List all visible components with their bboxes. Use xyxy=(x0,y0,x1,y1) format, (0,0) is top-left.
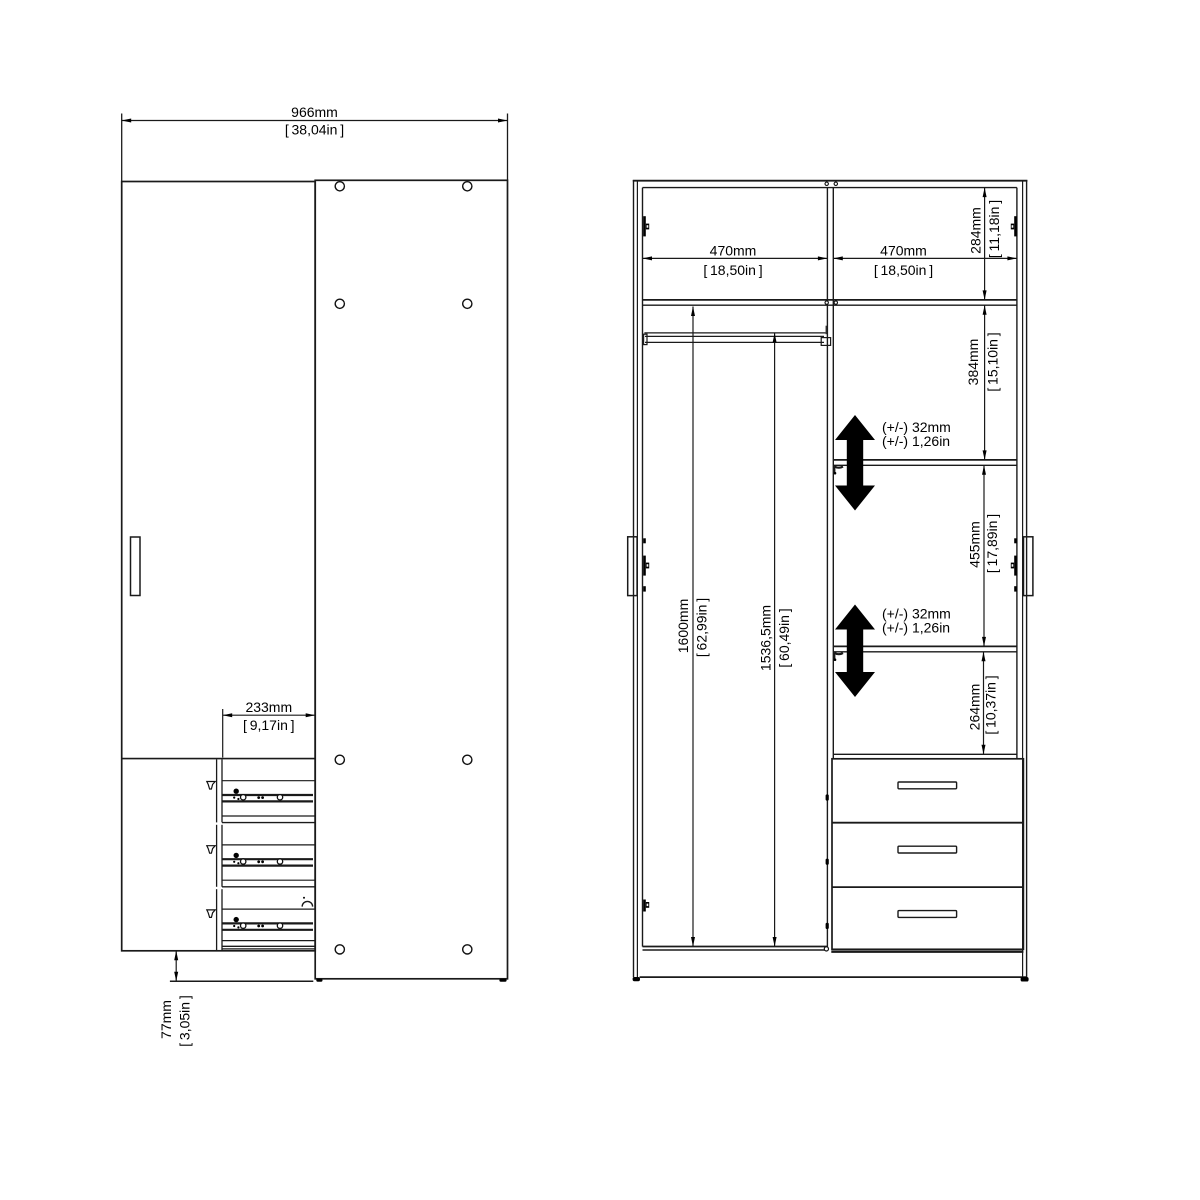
svg-text:[ 9,17in ]: [ 9,17in ] xyxy=(243,717,295,733)
svg-text:[ 18,50in ]: [ 18,50in ] xyxy=(874,262,933,278)
svg-text:455mm: 455mm xyxy=(966,521,982,568)
svg-text:966mm: 966mm xyxy=(291,104,338,120)
svg-text:(+/-) 1,26in: (+/-) 1,26in xyxy=(882,620,950,636)
svg-text:[ 18,50in ]: [ 18,50in ] xyxy=(703,262,762,278)
svg-text:[ 15,10in ]: [ 15,10in ] xyxy=(985,332,1001,391)
svg-text:[ 60,49in ]: [ 60,49in ] xyxy=(776,608,792,667)
svg-text:(+/-) 1,26in: (+/-) 1,26in xyxy=(882,433,950,449)
svg-text:[ 3,05in ]: [ 3,05in ] xyxy=(177,995,193,1047)
svg-text:284mm: 284mm xyxy=(967,207,983,254)
svg-text:[ 11,18in ]: [ 11,18in ] xyxy=(986,200,1002,258)
svg-text:77mm: 77mm xyxy=(158,1000,174,1039)
svg-text:[ 62,99in ]: [ 62,99in ] xyxy=(693,598,709,657)
svg-text:1536,5mm: 1536,5mm xyxy=(758,605,774,671)
svg-text:264mm: 264mm xyxy=(966,684,982,731)
svg-text:384mm: 384mm xyxy=(965,339,981,386)
svg-text:470mm: 470mm xyxy=(710,242,757,258)
svg-text:233mm: 233mm xyxy=(245,699,292,715)
svg-text:[ 38,04in ]: [ 38,04in ] xyxy=(285,121,344,137)
svg-text:[ 10,37in ]: [ 10,37in ] xyxy=(983,675,999,734)
svg-text:[ 17,89in ]: [ 17,89in ] xyxy=(984,514,1000,573)
svg-text:470mm: 470mm xyxy=(880,242,927,258)
svg-text:1600mm: 1600mm xyxy=(675,599,691,653)
